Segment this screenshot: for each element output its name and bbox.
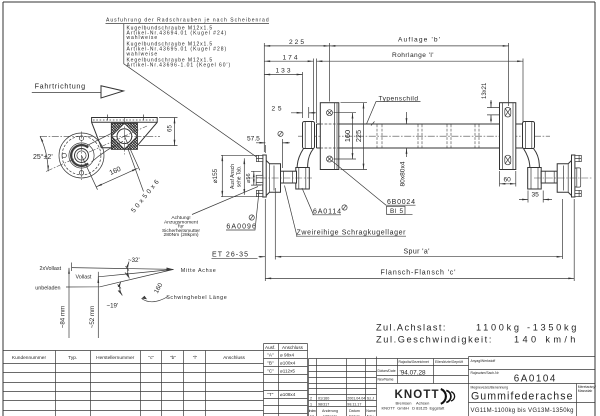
svg-text:Datum: Datum (349, 409, 360, 413)
svg-text:"b": "b" (170, 355, 176, 361)
svg-text:wahlweise: wahlweise (127, 35, 158, 41)
svg-text:Megnevezés/Benennung: Megnevezés/Benennung (471, 385, 509, 389)
svg-text:6B0024: 6B0024 (387, 199, 415, 206)
svg-text:2: 2 (310, 396, 312, 400)
svg-text:Auflage 'b': Auflage 'b' (398, 37, 440, 44)
svg-text:65: 65 (167, 125, 174, 132)
svg-text:Flansch-Flansch 'c': Flansch-Flansch 'c' (381, 270, 456, 277)
svg-text:2001.04.04: 2001.04.04 (347, 396, 365, 400)
svg-text:1: 1 (310, 403, 312, 407)
svg-text:2xVollast: 2xVollast (40, 266, 62, 272)
svg-text:Zul.Achslast:: Zul.Achslast: (376, 323, 446, 333)
svg-text:Name: Name (366, 409, 376, 413)
svg-text:Index: Index (309, 409, 316, 413)
svg-text:~84 mm: ~84 mm (60, 306, 67, 329)
svg-text:6A0114: 6A0114 (313, 208, 341, 215)
svg-text:Kundennummer: Kundennummer (12, 355, 47, 361)
svg-text:Ausf.: Ausf. (265, 345, 275, 350)
svg-text:174: 174 (283, 54, 298, 61)
svg-text:35: 35 (532, 192, 540, 199)
svg-text:01/160: 01/160 (318, 396, 329, 400)
svg-text:⌀108x4: ⌀108x4 (280, 392, 296, 397)
svg-text:Zul.Geschwindigkeit:: Zul.Geschwindigkeit: (376, 335, 492, 345)
svg-text:KNOTT: KNOTT (395, 389, 439, 401)
svg-text:~19': ~19' (107, 303, 119, 310)
svg-text:57.5: 57.5 (247, 136, 260, 143)
svg-text:Mitte Achse: Mitte Achse (181, 268, 216, 274)
svg-text:Vollast: Vollast (76, 275, 92, 281)
svg-text:133: 133 (276, 68, 291, 75)
svg-text:225: 225 (289, 39, 304, 46)
svg-text:Ausf Ansch: Ausf Ansch (230, 164, 236, 189)
svg-text:~32': ~32' (128, 257, 140, 264)
svg-text:⌀100x4: ⌀100x4 (280, 361, 296, 366)
svg-text:280Nm (28kpm): 280Nm (28kpm) (163, 232, 198, 238)
svg-text:Ausfuhrung der Radschrauben je: Ausfuhrung der Radschrauben je nach Sche… (106, 18, 269, 24)
svg-text:"C": "C" (267, 369, 274, 374)
svg-text:⌀ 98x4: ⌀ 98x4 (280, 352, 294, 357)
svg-text:Rajzolta/Gezeichnet: Rajzolta/Gezeichnet (399, 360, 429, 364)
svg-text:98/317: 98/317 (318, 403, 329, 407)
svg-text:Rohrlange 'l': Rohrlange 'l' (392, 52, 434, 59)
svg-text:"c": "c" (148, 355, 154, 361)
svg-text:Dátum/Date: Dátum/Date (378, 369, 396, 373)
svg-text:KNOTT GmbH D 83125 Eggstat: KNOTT GmbH D 83125 Eggstatt (382, 406, 446, 411)
svg-text:Rajzszám/Sach-Nr: Rajzszám/Sach-Nr (471, 371, 500, 375)
svg-text:Bl 5: Bl 5 (390, 208, 403, 215)
svg-text:"l": "l" (193, 355, 198, 361)
svg-text:Anderung: Anderung (322, 409, 338, 413)
svg-text:ET 26-35: ET 26-35 (212, 252, 248, 259)
svg-text:60: 60 (504, 177, 512, 184)
svg-text:Typ.: Typ. (68, 355, 77, 361)
svg-text:98.11.17: 98.11.17 (347, 403, 361, 407)
svg-text:⌀112x5: ⌀112x5 (280, 369, 295, 374)
svg-text:Ellenőrizte/Geprüft: Ellenőrizte/Geprüft (435, 360, 463, 364)
svg-text:"B": "B" (267, 361, 274, 366)
svg-text:Anschluss: Anschluss (223, 355, 245, 361)
svg-text:1100kg -1350kg: 1100kg -1350kg (476, 323, 577, 333)
svg-text:Herstellernummer: Herstellernummer (96, 355, 135, 361)
svg-text:225: 225 (354, 130, 363, 142)
svg-text:⌀155: ⌀155 (212, 168, 219, 183)
svg-text:Anschluss: Anschluss (282, 345, 304, 350)
svg-text:Fahrtrichtung: Fahrtrichtung (35, 82, 86, 91)
svg-text:160: 160 (343, 130, 352, 142)
svg-text:80x80x4: 80x80x4 (399, 161, 406, 186)
svg-text:'94.07.28: '94.07.28 (400, 369, 427, 376)
svg-text:140 km/h: 140 km/h (514, 335, 576, 345)
svg-text:unbeladen: unbeladen (35, 285, 60, 291)
svg-text:⌀56: ⌀56 (246, 173, 252, 183)
svg-text:Név/Name: Név/Name (378, 378, 394, 382)
svg-text:Schwinghebel Länge: Schwinghebel Länge (166, 295, 227, 301)
svg-text:~52 mm: ~52 mm (89, 306, 96, 329)
svg-text:sehe Tab.: sehe Tab. (236, 166, 242, 188)
svg-text:13x21: 13x21 (482, 82, 488, 99)
svg-text:Massstab: Massstab (578, 389, 593, 393)
svg-text:25°±2': 25°±2' (33, 153, 53, 161)
svg-text:VG11M-1100kg bis VG13M-1350kg: VG11M-1100kg bis VG13M-1350kg (471, 408, 574, 414)
svg-text:Sz.J: Sz.J (367, 396, 374, 400)
svg-text:"A": "A" (267, 352, 274, 357)
svg-text:Anyag/Werkstoff: Anyag/Werkstoff (471, 359, 496, 363)
svg-text:"T": "T" (267, 392, 273, 397)
svg-text:Zweireihige Schragkugellager: Zweireihige Schragkugellager (297, 230, 407, 237)
svg-text:Spur 'a': Spur 'a' (404, 249, 430, 256)
svg-text:Artikel-Nr.43696-1.01 (Kegel 6: Artikel-Nr.43696-1.01 (Kegel 60') (127, 63, 231, 69)
